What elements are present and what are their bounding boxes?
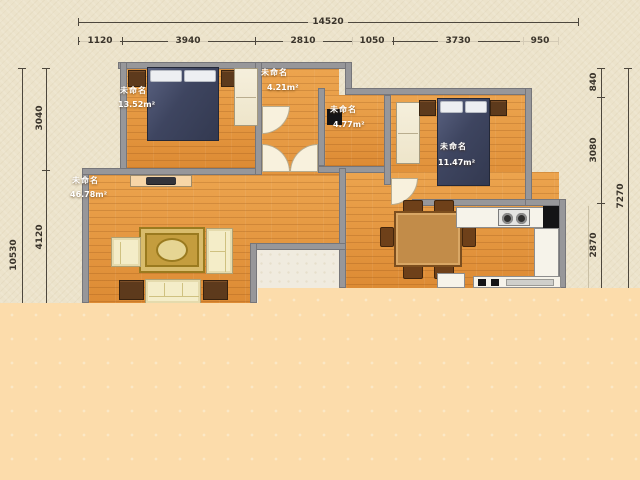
dim-tick <box>597 203 605 204</box>
dim-label-top-3: 1050 <box>352 36 392 46</box>
kitchen-sink-icon <box>543 206 559 228</box>
dim-tick <box>255 37 256 45</box>
nightstand-icon <box>419 100 436 116</box>
wall-bedroom-right-west <box>384 95 391 185</box>
wall-lower-room-north <box>250 243 346 250</box>
cooktop-icon <box>498 209 530 226</box>
kitchen-cabinet-icon <box>437 273 465 288</box>
unloaded-image-region <box>0 303 640 480</box>
wall-bedroom-right-south <box>412 199 532 206</box>
dim-tick <box>42 68 50 69</box>
dimension-line-left-segments <box>46 68 47 303</box>
room-label-bedroom-right: 未命名 <box>440 143 467 151</box>
dim-label-top-5: 950 <box>520 36 560 46</box>
dim-tick <box>393 37 394 45</box>
dining-chair-icon <box>380 227 394 247</box>
dim-label-left-1: 4120 <box>35 217 45 257</box>
dim-label-right-total: 7270 <box>616 176 626 216</box>
dim-tick <box>122 37 123 45</box>
room-label-bedroom-left: 未命名 <box>120 87 147 95</box>
sofa-icon <box>145 279 201 304</box>
dim-label-right-1: 3080 <box>589 130 599 170</box>
room-label-living: 未命名 <box>72 177 99 185</box>
room-area-living: 46.78m² <box>70 191 107 199</box>
room-area-closet: 4.21m² <box>267 84 299 92</box>
room-label-bathroom: 未命名 <box>330 106 357 114</box>
dim-label-right-0: 840 <box>589 62 599 102</box>
nightstand-icon <box>490 100 507 116</box>
wall-bathroom-south <box>318 166 391 173</box>
wall-living-east <box>339 168 346 288</box>
dimension-line-right-total <box>628 68 629 288</box>
kitchen-cabinet-icon <box>473 276 561 288</box>
dim-label-top-total: 14520 <box>308 17 348 27</box>
wardrobe-icon <box>396 102 420 164</box>
dining-table-icon <box>394 211 462 267</box>
wall-bathroom-west <box>318 88 325 166</box>
side-table-icon <box>119 280 144 300</box>
wall-top-right <box>345 88 532 95</box>
dimension-line-right-segments <box>601 68 602 288</box>
room-label-closet: 未命名 <box>261 69 288 77</box>
loveseat-icon <box>206 228 233 274</box>
dim-tick <box>578 18 579 26</box>
wall-living-north <box>82 168 262 175</box>
dim-tick <box>78 37 79 45</box>
wardrobe-icon <box>234 68 258 126</box>
dim-label-top-0: 1120 <box>80 36 120 46</box>
dim-label-top-2: 2810 <box>283 36 323 46</box>
room-area-bedroom-right: 11.47m² <box>438 159 475 167</box>
nightstand-icon <box>128 70 146 87</box>
dim-tick <box>624 68 632 69</box>
side-table-icon <box>203 280 228 300</box>
dim-tick <box>18 68 26 69</box>
dim-tick <box>42 170 50 171</box>
dimension-line-left-total <box>22 68 23 303</box>
double-bed-icon <box>147 67 219 141</box>
dining-chair-icon <box>403 265 423 279</box>
wall-bedroom-left-west <box>120 62 127 175</box>
wall-lower-room-west <box>250 243 257 303</box>
wall-bedroom-right-east <box>525 88 532 206</box>
wall-left-outer <box>82 168 89 303</box>
room-area-bathroom: 4.77m² <box>333 121 365 129</box>
dim-tick <box>78 18 79 26</box>
dining-chair-icon <box>462 227 476 247</box>
room-area-bedroom-left: 13.52m² <box>118 101 155 109</box>
dim-label-left-0: 3040 <box>35 98 45 138</box>
floor-plan-canvas: 未命名 46.78m² 未命名 13.52m² 未命名 4.21m² 未命名 4… <box>0 0 640 480</box>
dim-label-top-1: 3940 <box>168 36 208 46</box>
tv-icon <box>146 177 176 184</box>
dim-label-right-2: 2870 <box>589 225 599 265</box>
rug-icon <box>139 227 205 273</box>
dim-label-top-4: 3730 <box>438 36 478 46</box>
wall-kitchen-east <box>559 199 566 288</box>
armchair-icon <box>111 237 141 267</box>
dim-label-left-total: 10530 <box>9 235 19 275</box>
